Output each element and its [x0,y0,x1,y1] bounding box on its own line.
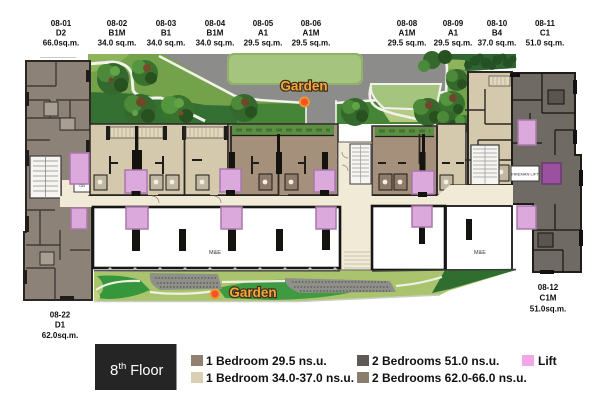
svg-text:Garden: Garden [229,285,276,300]
svg-text:1 Bedroom 29.5 ns.u.: 1 Bedroom 29.5 ns.u. [206,354,327,368]
svg-text:Lift: Lift [538,354,557,368]
svg-text:M&E: M&E [209,250,221,256]
svg-text:8th Floor: 8th Floor [110,361,164,379]
svg-text:Garden: Garden [280,79,327,94]
svg-text:FIREMAN LIFT: FIREMAN LIFT [511,172,539,177]
svg-text:2 Bedrooms 51.0 ns.u.: 2 Bedrooms 51.0 ns.u. [372,354,499,368]
svg-text:M&E: M&E [474,250,486,256]
svg-text:2 Bedrooms 62.0-66.0 ns.u.: 2 Bedrooms 62.0-66.0 ns.u. [372,371,527,385]
svg-text:1 Bedroom 34.0-37.0 ns.u.: 1 Bedroom 34.0-37.0 ns.u. [206,371,354,385]
